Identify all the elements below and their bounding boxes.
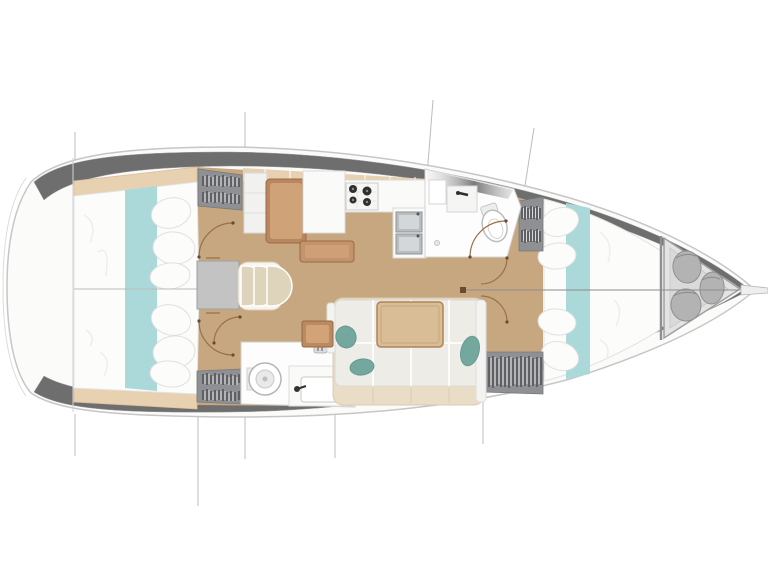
galley-island <box>300 241 354 262</box>
shower-drain <box>435 241 440 246</box>
side-table <box>302 321 333 347</box>
bowsprit <box>741 285 768 295</box>
yacht-floor-plan <box>0 0 768 576</box>
salon-table <box>377 302 443 347</box>
head-vanity <box>429 180 446 204</box>
engine-box <box>197 261 239 309</box>
head-counter <box>447 186 477 212</box>
companionway-steps <box>241 266 292 306</box>
nav-seat <box>244 173 267 233</box>
chart-table <box>266 179 306 243</box>
floor-plan-canvas <box>0 0 768 576</box>
stove <box>346 183 378 210</box>
wardrobe-forward-top <box>519 197 543 251</box>
